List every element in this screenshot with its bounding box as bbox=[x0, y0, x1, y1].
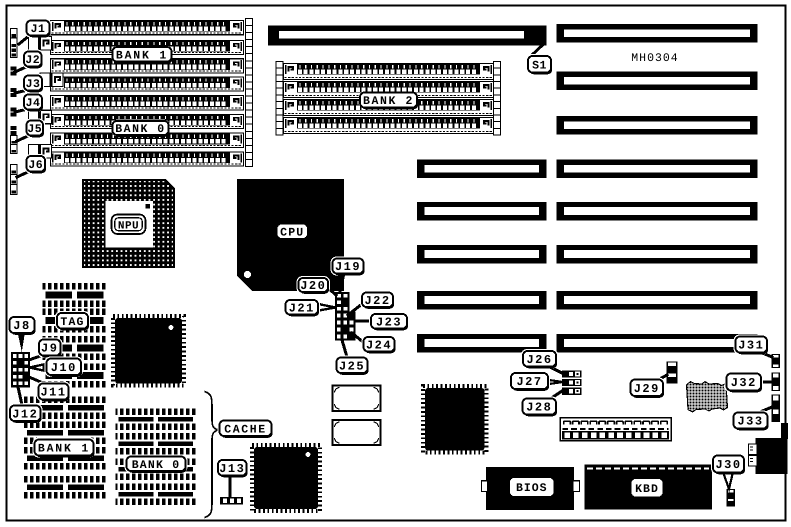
svg-text:J5: J5 bbox=[27, 123, 42, 136]
svg-text:J24: J24 bbox=[366, 338, 392, 352]
svg-text:J22: J22 bbox=[364, 294, 390, 308]
svg-text:BIOS: BIOS bbox=[516, 482, 548, 495]
svg-text:J26: J26 bbox=[526, 353, 552, 367]
svg-text:J33: J33 bbox=[737, 415, 763, 429]
svg-text:J20: J20 bbox=[300, 279, 326, 293]
svg-text:J6: J6 bbox=[28, 159, 43, 172]
svg-text:NPU: NPU bbox=[118, 221, 139, 233]
svg-text:TAG: TAG bbox=[60, 316, 84, 329]
svg-text:J2: J2 bbox=[25, 54, 40, 67]
svg-text:J27: J27 bbox=[516, 375, 542, 389]
svg-text:J11: J11 bbox=[40, 386, 66, 400]
svg-text:J32: J32 bbox=[731, 376, 757, 390]
svg-text:J12: J12 bbox=[12, 407, 38, 421]
svg-text:BANK 1: BANK 1 bbox=[116, 50, 168, 63]
svg-text:J30: J30 bbox=[715, 458, 741, 472]
svg-text:J31: J31 bbox=[738, 339, 764, 353]
svg-text:J21: J21 bbox=[289, 301, 315, 315]
svg-text:J13: J13 bbox=[219, 462, 245, 476]
svg-text:J1: J1 bbox=[31, 23, 46, 36]
svg-text:S1: S1 bbox=[532, 59, 547, 72]
svg-text:J4: J4 bbox=[26, 97, 41, 110]
svg-text:J29: J29 bbox=[634, 382, 660, 396]
svg-text:J3: J3 bbox=[26, 78, 41, 91]
svg-text:BANK 0: BANK 0 bbox=[132, 459, 181, 472]
svg-text:BANK 2: BANK 2 bbox=[363, 95, 414, 108]
svg-text:J19: J19 bbox=[335, 260, 361, 274]
svg-text:J8: J8 bbox=[13, 319, 30, 333]
svg-text:BANK 0: BANK 0 bbox=[115, 123, 165, 136]
svg-text:CPU: CPU bbox=[280, 226, 304, 239]
svg-text:J28: J28 bbox=[526, 401, 552, 415]
svg-text:MH0304: MH0304 bbox=[631, 52, 678, 65]
svg-text:J25: J25 bbox=[339, 359, 365, 373]
svg-text:CACHE: CACHE bbox=[224, 423, 267, 436]
svg-text:J9: J9 bbox=[41, 342, 58, 356]
svg-text:J10: J10 bbox=[51, 361, 77, 375]
svg-text:BANK 1: BANK 1 bbox=[38, 443, 90, 456]
svg-text:J23: J23 bbox=[376, 315, 402, 329]
svg-text:KBD: KBD bbox=[635, 483, 659, 496]
